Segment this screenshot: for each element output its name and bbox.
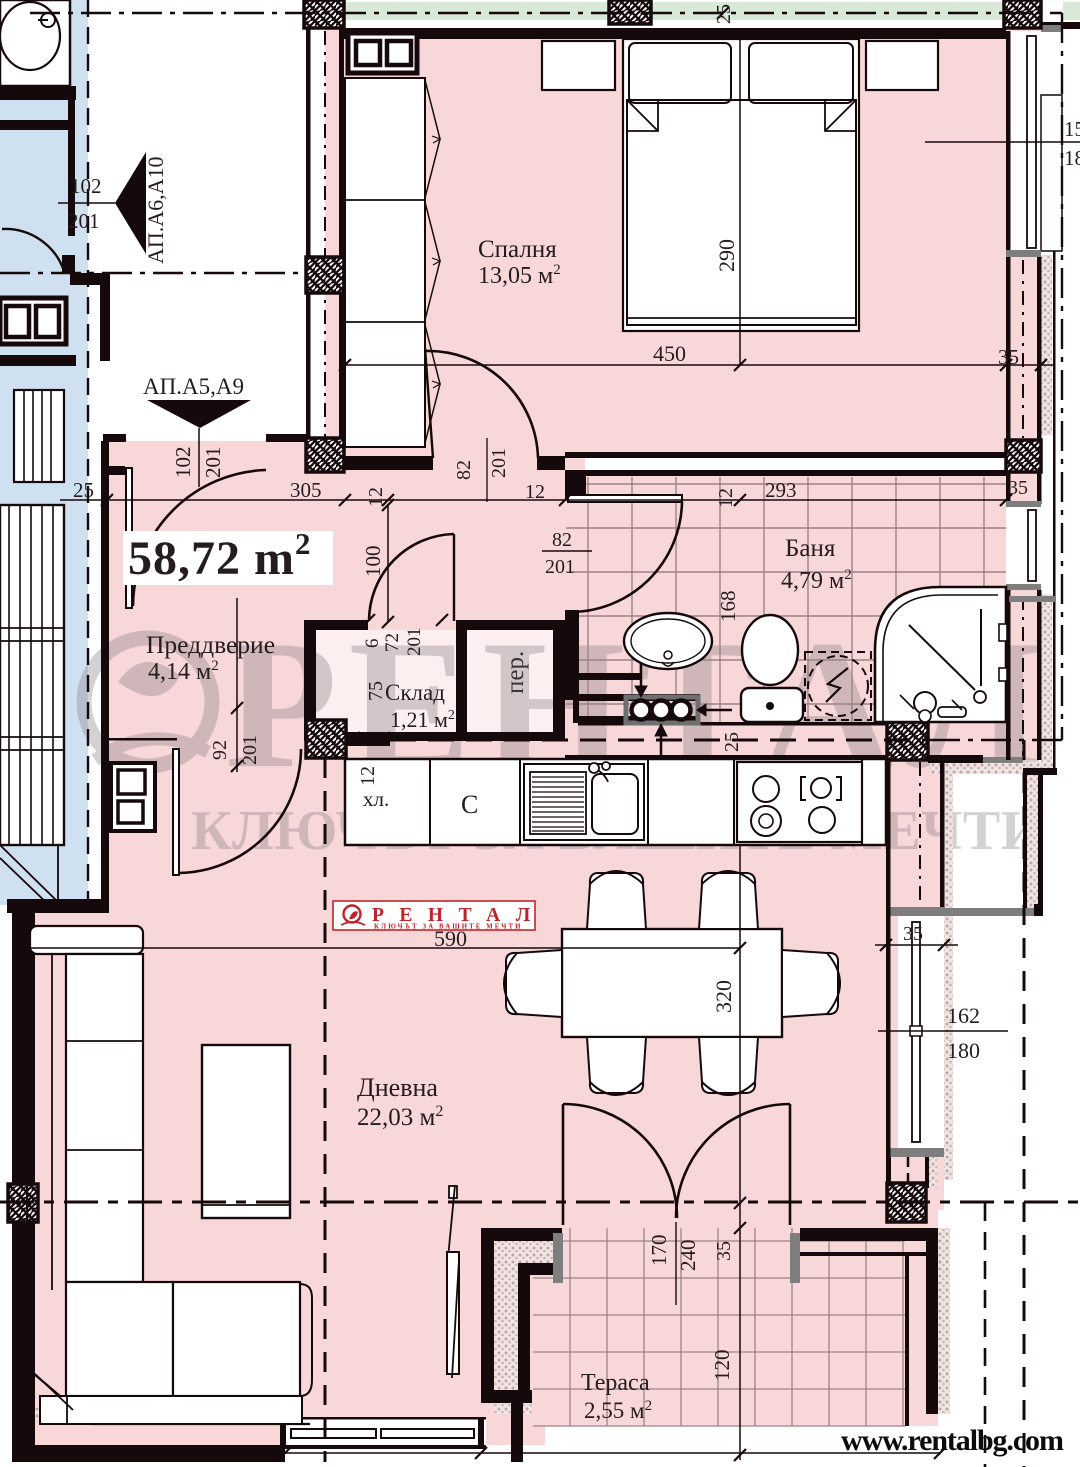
svg-text:293: 293 [765,478,797,502]
svg-text:12: 12 [715,488,737,508]
svg-text:Тераса: Тераса [581,1370,650,1396]
svg-text:201: 201 [201,447,225,479]
svg-text:18: 18 [1064,146,1080,170]
svg-text:92: 92 [209,740,231,760]
svg-text:102: 102 [171,447,195,479]
svg-text:35: 35 [903,923,923,945]
svg-text:120: 120 [710,1350,734,1382]
svg-text:240: 240 [676,1240,700,1272]
svg-text:100: 100 [361,546,385,578]
svg-text:82: 82 [552,529,572,551]
svg-text:хл.: хл. [363,787,389,811]
svg-text:72: 72 [382,633,403,652]
svg-text:13,05 м2: 13,05 м2 [478,262,561,289]
svg-text:201: 201 [68,209,100,233]
svg-text:6: 6 [362,639,383,649]
svg-text:170: 170 [647,1235,671,1267]
svg-text:201: 201 [488,448,510,478]
svg-text:25: 25 [721,732,743,752]
svg-text:82: 82 [453,460,475,480]
svg-text:Склад: Склад [385,680,445,705]
svg-text:12: 12 [365,487,387,507]
svg-text:22,03 м2: 22,03 м2 [357,1103,443,1131]
svg-text:C: C [461,790,478,819]
svg-text:12: 12 [357,766,379,786]
svg-text:305: 305 [290,478,322,502]
svg-text:Баня: Баня [785,535,836,562]
svg-text:35: 35 [998,345,1019,369]
svg-text:Спалня: Спалня [478,236,557,263]
svg-text:290: 290 [714,239,739,272]
svg-text:АП.А5,А9: АП.А5,А9 [143,374,244,399]
svg-text:12: 12 [525,481,545,503]
svg-text:15: 15 [1064,117,1080,141]
svg-text:КЛЮЧЪТ ЗА ВАШИТЕ МЕЧТИ: КЛЮЧЪТ ЗА ВАШИТЕ МЕЧТИ [374,924,523,931]
svg-text:35: 35 [713,1241,735,1261]
svg-text:25: 25 [713,4,735,24]
svg-text:35: 35 [1008,477,1028,499]
svg-text:1,21 м2: 1,21 м2 [390,707,455,732]
svg-text:4,14 м2: 4,14 м2 [148,658,219,685]
svg-text:201: 201 [404,628,425,657]
svg-text:Дневна: Дневна [357,1073,438,1102]
svg-text:75: 75 [365,681,387,701]
svg-text:162: 162 [947,1003,980,1028]
svg-text:25: 25 [73,478,94,502]
svg-text:АП.А6,А10: АП.А6,А10 [143,156,168,264]
svg-text:2,55 м2: 2,55 м2 [584,1398,652,1423]
svg-text:пер.: пер. [502,651,529,694]
svg-text:450: 450 [653,341,686,366]
svg-text:168: 168 [716,591,740,623]
svg-text:102: 102 [70,174,102,198]
svg-text:180: 180 [947,1038,980,1063]
svg-text:www.rentalbg.com: www.rentalbg.com [841,1424,1064,1457]
svg-text:4,79 м2: 4,79 м2 [781,567,852,594]
svg-text:Преддверие: Преддверие [146,630,275,659]
svg-text:201: 201 [239,735,261,765]
svg-text:58,72 m2: 58,72 m2 [128,526,311,585]
svg-text:201: 201 [545,556,575,578]
svg-text:320: 320 [711,980,736,1013]
